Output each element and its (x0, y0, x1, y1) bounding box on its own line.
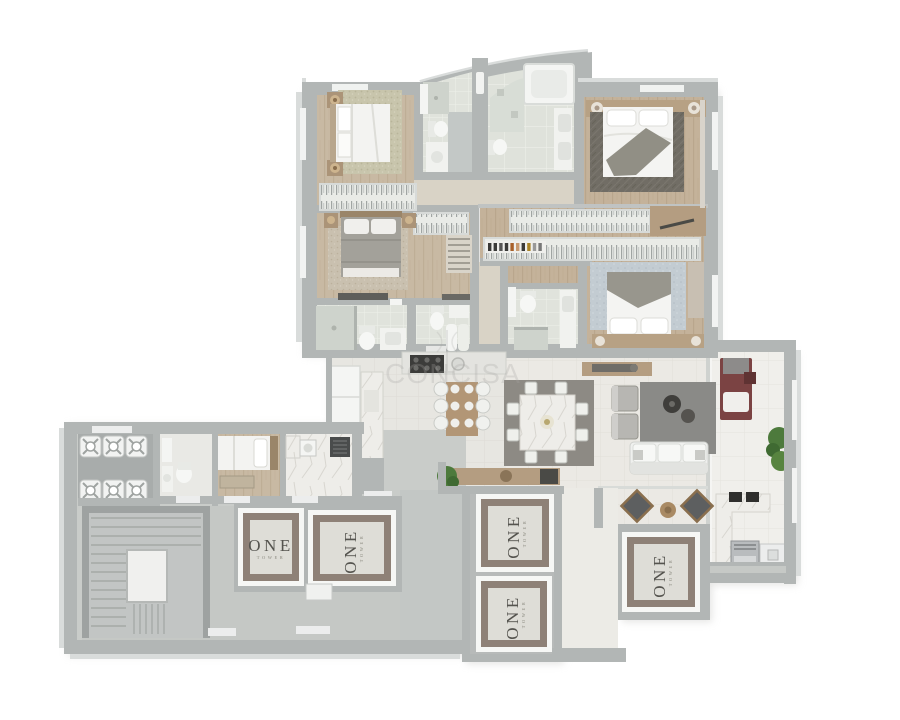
svg-text:TOWER: TOWER (521, 600, 526, 628)
svg-text:ONE: ONE (248, 536, 293, 555)
svg-text:TOWER: TOWER (257, 555, 285, 560)
svg-text:ONE: ONE (504, 513, 523, 558)
svg-text:ONE: ONE (650, 552, 669, 597)
svg-text:TOWER: TOWER (668, 558, 673, 586)
svg-text:TOWER: TOWER (522, 519, 527, 547)
svg-text:CONCISA: CONCISA (385, 358, 521, 389)
svg-text:ONE: ONE (503, 594, 522, 639)
svg-text:TOWER: TOWER (359, 534, 364, 562)
svg-text:ONE: ONE (341, 528, 360, 573)
